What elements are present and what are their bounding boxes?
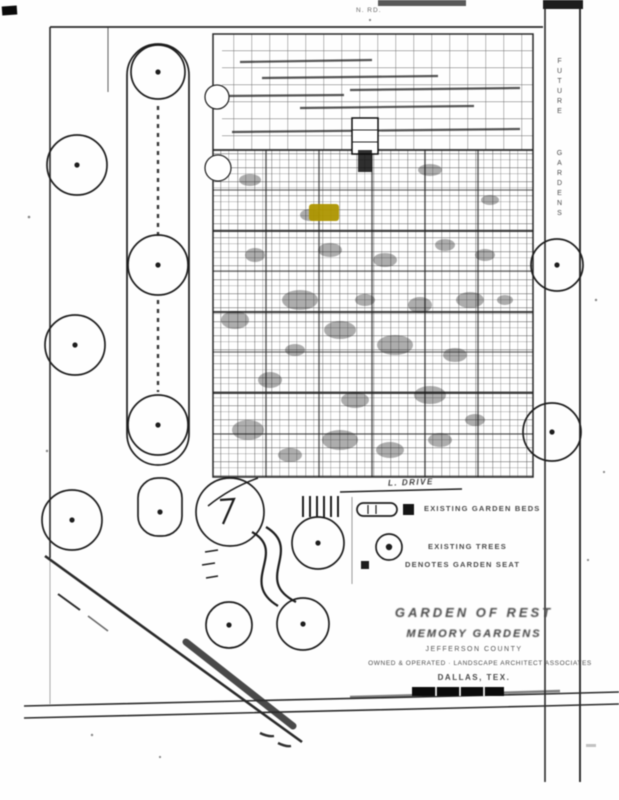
title-line-2: MEMORY GARDENS — [388, 628, 560, 640]
title-line-5: DALLAS, TEX. — [408, 673, 540, 682]
scan-smudge-top-right — [543, 0, 583, 9]
scan-smudge-top — [378, 0, 466, 6]
legend-label-trees: EXISTING TREES — [428, 542, 507, 551]
scale-bar — [412, 687, 504, 696]
title-line-3: JEFFERSON COUNTY — [398, 646, 550, 653]
top-road-label: N. RD. — [356, 7, 382, 14]
legend-garden-bed-icon — [357, 503, 397, 516]
garden-bed-lane — [127, 44, 189, 536]
highlighted-plot — [309, 204, 339, 221]
bottom-tick-marks — [260, 733, 291, 746]
drive-and-paths — [202, 478, 462, 606]
legend-bed-square-icon — [403, 504, 414, 515]
legend-label-garden-seat: DENOTES GARDEN SEAT — [405, 560, 520, 569]
legend-symbols — [352, 497, 414, 584]
legend-label-garden-beds: EXISTING GARDEN BEDS — [424, 504, 541, 513]
scanned-plat-map-page: N. RD. FUTURE GARDENS L. DRIVE EXISTING … — [0, 0, 619, 800]
title-line-1: GARDEN OF REST — [372, 605, 576, 620]
right-road-label-upper: FUTURE — [556, 58, 563, 118]
title-line-4: OWNED & OPERATED · LANDSCAPE ARCHITECT A… — [352, 660, 608, 667]
legend-seat-square-icon — [361, 561, 369, 569]
drive-label: L. DRIVE — [388, 477, 434, 488]
right-road-label-lower: GARDENS — [556, 150, 563, 220]
burial-plot-grid — [205, 34, 533, 477]
